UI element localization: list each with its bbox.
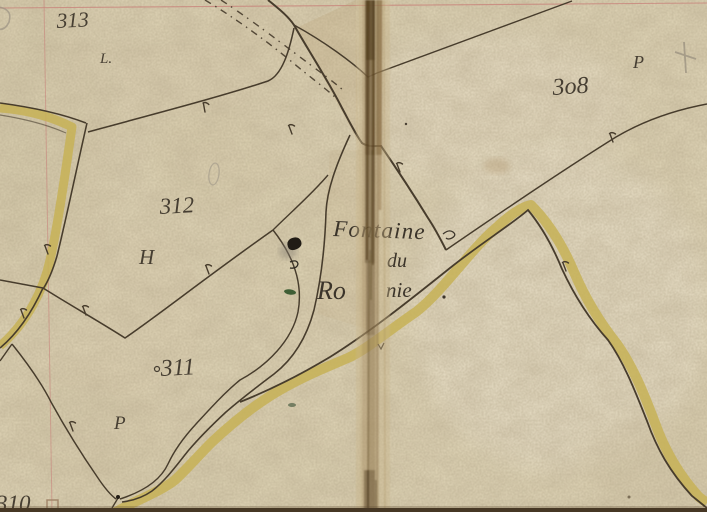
svg-text:311: 311 [159, 354, 196, 382]
svg-text:H: H [138, 245, 156, 269]
svg-text:Ro: Ro [316, 276, 346, 305]
svg-text:313: 313 [55, 7, 89, 33]
svg-text:312: 312 [158, 192, 195, 219]
svg-text:P: P [632, 52, 644, 72]
svg-text:3o8: 3o8 [551, 73, 590, 102]
svg-text:L.: L. [99, 51, 112, 67]
svg-text:P: P [113, 413, 126, 434]
